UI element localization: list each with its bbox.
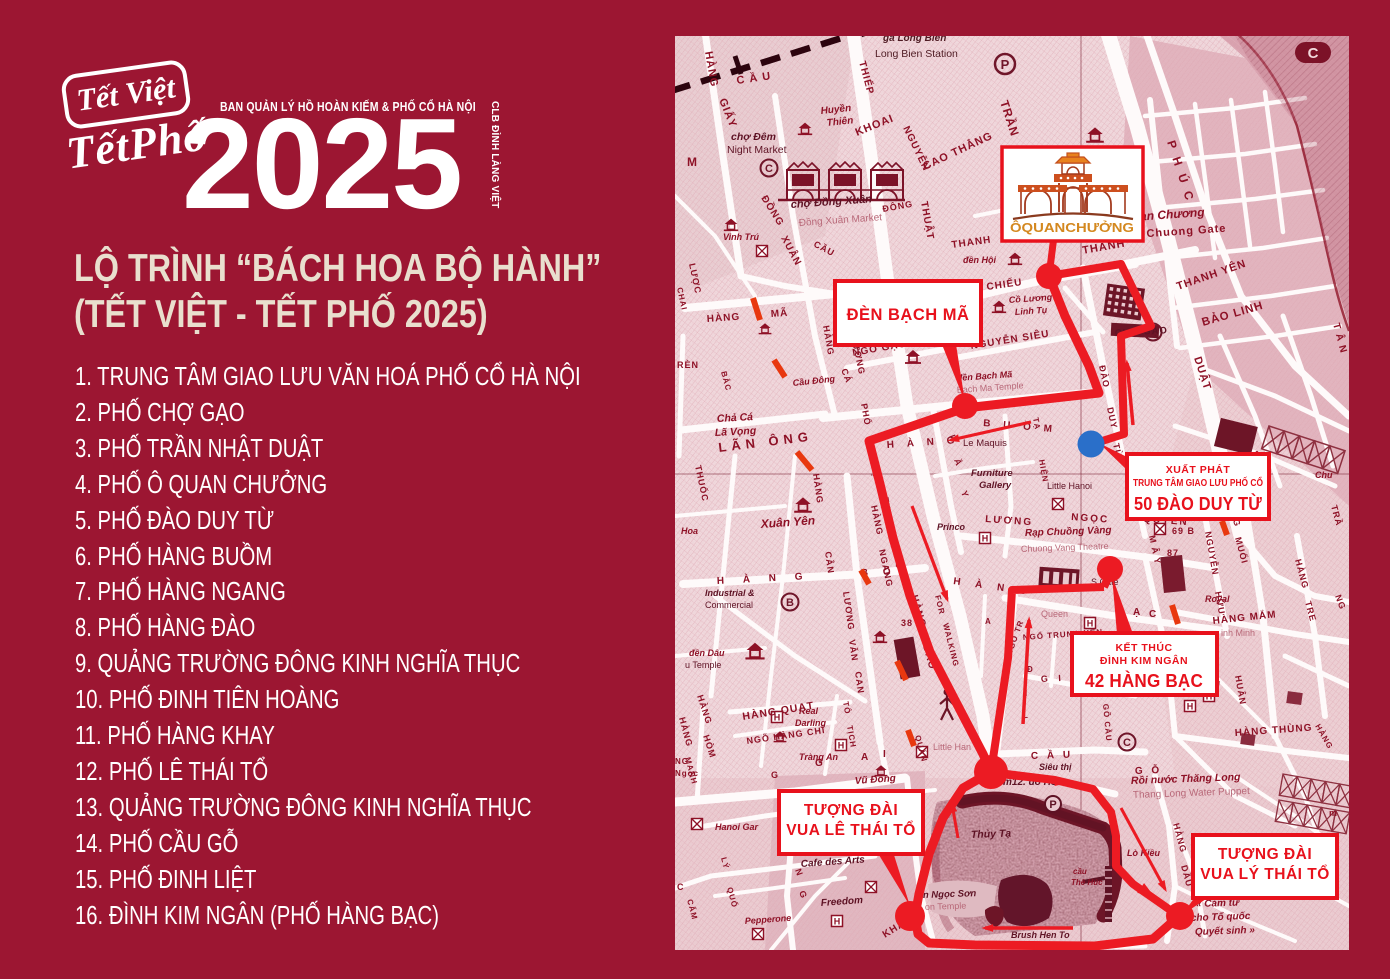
svg-text:C: C (677, 882, 685, 892)
svg-text:A: A (985, 617, 992, 626)
svg-text:NG: NG (675, 757, 689, 766)
svg-text:G: G (771, 770, 779, 780)
svg-text:Ạ: Ạ (1133, 607, 1141, 618)
svg-text:G: G (815, 758, 824, 769)
svg-text:Thủy Tạ: Thủy Tạ (971, 828, 1012, 841)
svg-text:87: 87 (1167, 548, 1179, 558)
svg-text:Ngọc: Ngọc (675, 769, 699, 778)
svg-text:Siêu thị: Siêu thị (1039, 762, 1072, 772)
svg-text:Le Maquis: Le Maquis (963, 438, 1007, 449)
svg-text:P: P (1049, 799, 1056, 811)
svg-text:n Ngọc Sơn: n Ngọc Sơn (923, 888, 977, 901)
svg-text:Night Market: Night Market (727, 144, 787, 156)
svg-text:Lã Vọng: Lã Vọng (715, 425, 758, 439)
svg-text:Quyết sinh »: Quyết sinh » (1195, 924, 1256, 938)
svg-text:ĐÌNH KIM NGÂN: ĐÌNH KIM NGÂN (1100, 654, 1188, 667)
svg-text:Long Bien Station: Long Bien Station (875, 48, 958, 60)
svg-text:m: m (1329, 808, 1338, 818)
svg-text:VUA LÝ THÁI TỔ: VUA LÝ THÁI TỔ (1200, 865, 1330, 883)
svg-text:Furniture: Furniture (971, 468, 1013, 479)
svg-text:Princo: Princo (937, 522, 966, 532)
svg-text:KẾT THÚC: KẾT THÚC (1115, 641, 1172, 654)
svg-text:69 B: 69 B (1172, 526, 1195, 536)
svg-text:Industrial &: Industrial & (705, 588, 755, 598)
svg-text:C: C (1149, 609, 1157, 620)
svg-text:Real: Real (799, 706, 819, 716)
svg-text:Little Han: Little Han (933, 742, 971, 752)
svg-text:Brush Hen To: Brush Hen To (1011, 930, 1070, 940)
svg-text:on Temple: on Temple (925, 901, 967, 912)
svg-text:M: M (687, 155, 698, 169)
svg-text:đền Hội: đền Hội (963, 255, 996, 265)
svg-text:ĐÈN BẠCH MÃ: ĐÈN BẠCH MÃ (847, 304, 970, 324)
svg-text:Vinh Trú: Vinh Trú (723, 232, 760, 242)
svg-text:MÃ: MÃ (770, 306, 788, 320)
svg-text:P: P (1001, 57, 1010, 72)
svg-text:chợ Đêm: chợ Đêm (731, 131, 776, 143)
svg-text:inh Minh: inh Minh (1221, 628, 1255, 638)
svg-text:đền Dâu: đền Dâu (689, 648, 725, 658)
svg-text:RÈN: RÈN (677, 360, 699, 370)
svg-text:C: C (1123, 737, 1131, 749)
svg-text:Queen: Queen (1041, 609, 1068, 619)
svg-text:cho Tổ quốc: cho Tổ quốc (1191, 910, 1251, 924)
svg-text:Hanoi Gar: Hanoi Gar (715, 822, 759, 832)
svg-text:TƯỢNG ĐÀI: TƯỢNG ĐÀI (804, 802, 898, 819)
svg-text:Gallery: Gallery (979, 480, 1012, 491)
svg-text:TRUNG TÂM GIAO LƯU PHỐ CỔ: TRUNG TÂM GIAO LƯU PHỐ CỔ (1133, 475, 1263, 489)
svg-text:B: B (786, 597, 794, 609)
svg-text:C: C (1308, 45, 1319, 62)
svg-text:42 HÀNG BẠC: 42 HÀNG BẠC (1085, 670, 1203, 691)
svg-text:Little Hanoi: Little Hanoi (1047, 481, 1092, 491)
svg-text:A: A (861, 752, 869, 763)
svg-text:Chu: Chu (1315, 470, 1333, 480)
svg-text:50 ĐÀO DUY TỪ: 50 ĐÀO DUY TỪ (1134, 493, 1262, 514)
svg-text:VUA LÊ THÁI TỔ: VUA LÊ THÁI TỔ (786, 821, 916, 839)
svg-text:ga Long Biên: ga Long Biên (882, 36, 946, 44)
svg-text:I: I (883, 749, 887, 760)
svg-text:Commercial: Commercial (705, 600, 753, 610)
svg-text:Chả Cá: Chả Cá (717, 411, 754, 425)
svg-text:38: 38 (901, 618, 913, 628)
svg-text:XUẤT PHÁT: XUẤT PHÁT (1166, 463, 1231, 476)
svg-text:C: C (765, 163, 773, 175)
svg-text:cầu: cầu (1073, 867, 1087, 876)
svg-text:ÔQUANCHƯỞNG: ÔQUANCHƯỞNG (1010, 220, 1134, 235)
svg-text:u Temple: u Temple (685, 660, 721, 670)
svg-text:Hoa: Hoa (681, 526, 698, 536)
svg-text:Thê Húc: Thê Húc (1071, 878, 1103, 887)
svg-text:TƯỢNG ĐÀI: TƯỢNG ĐÀI (1218, 846, 1312, 863)
